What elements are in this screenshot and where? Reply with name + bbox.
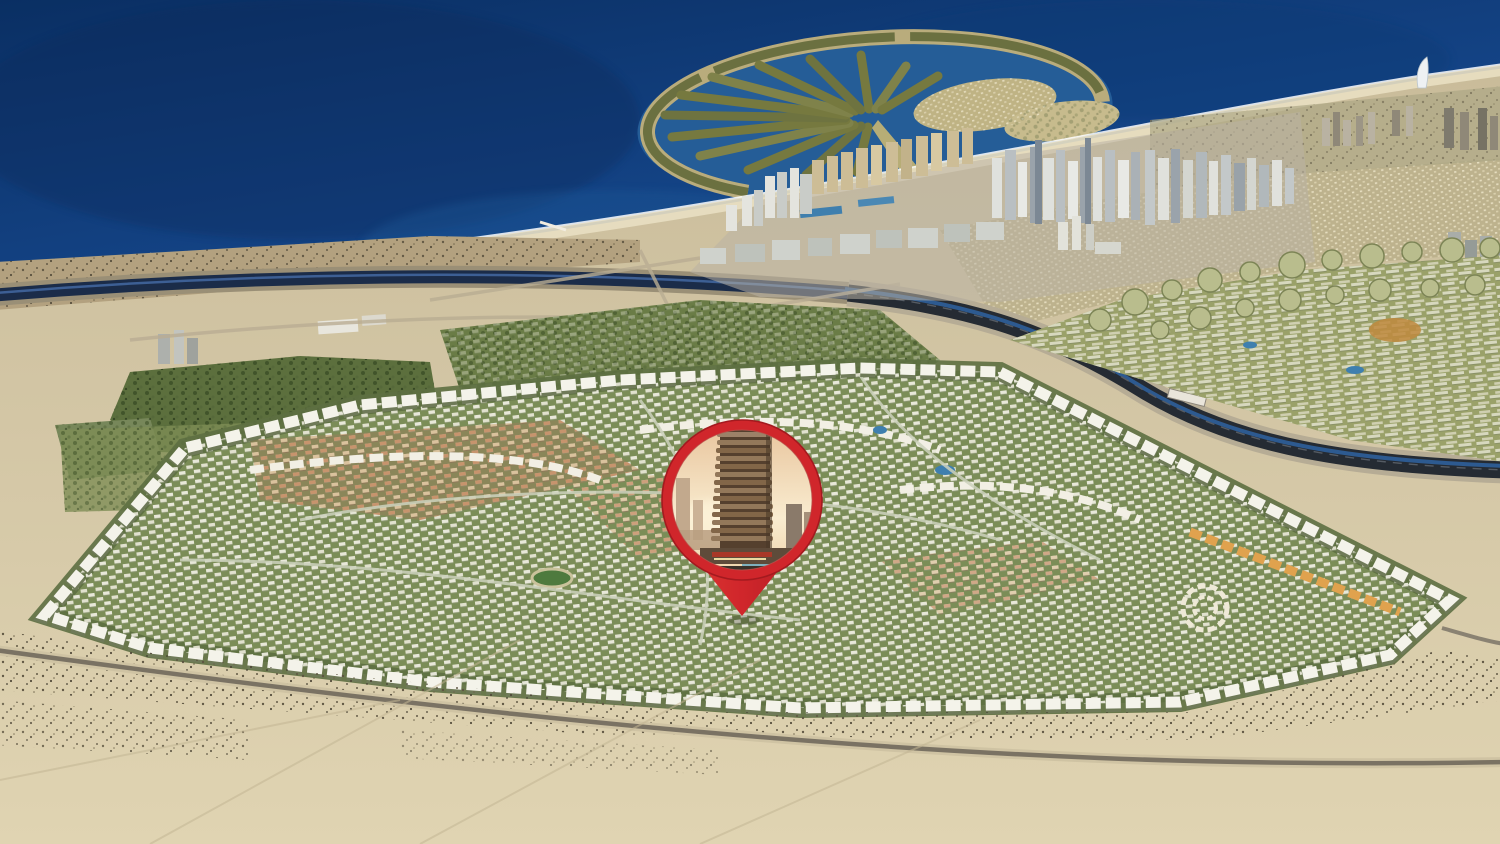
aerial-map bbox=[0, 0, 1500, 844]
photo-main-tower bbox=[711, 430, 773, 556]
orange-tree-cluster bbox=[1369, 318, 1421, 342]
sports-track bbox=[532, 569, 572, 587]
